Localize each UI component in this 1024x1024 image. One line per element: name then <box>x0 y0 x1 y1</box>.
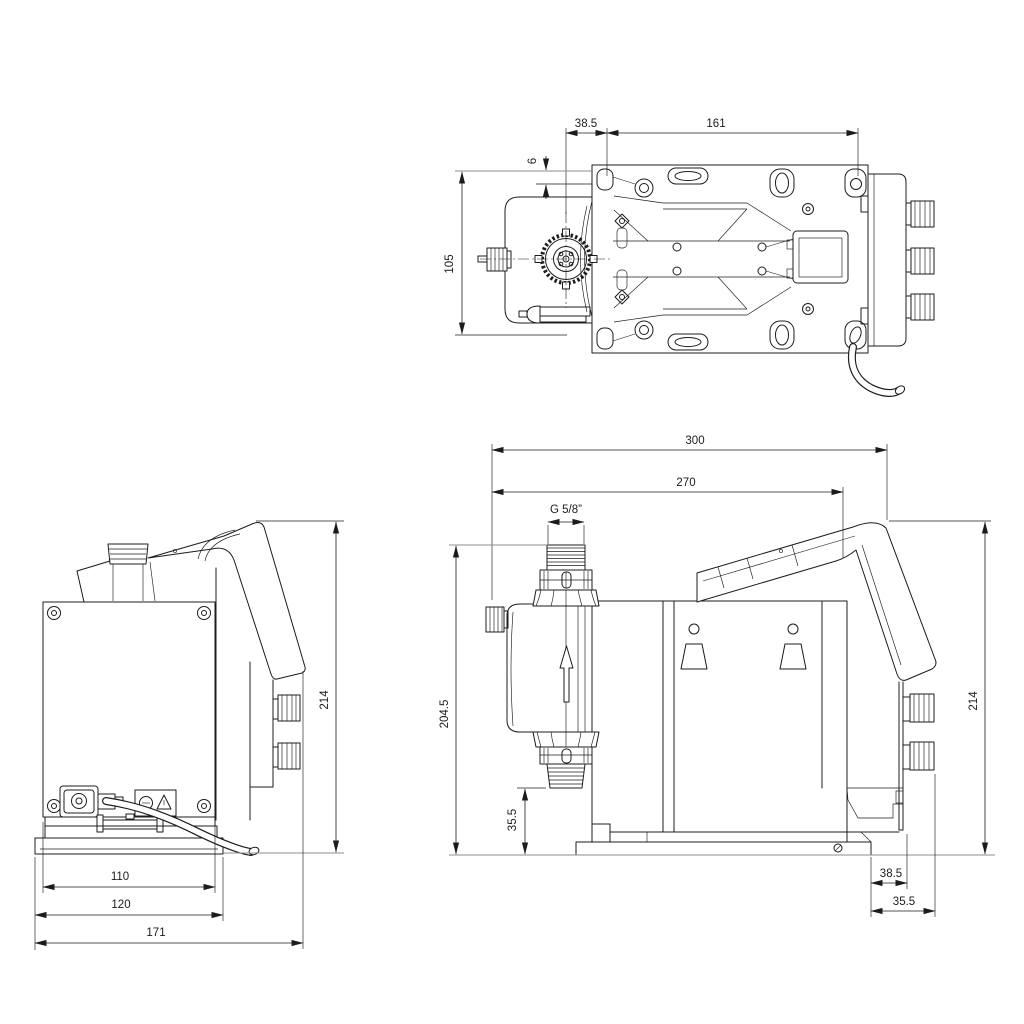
dim-label-hole-spacing: 161 <box>706 118 725 130</box>
mount-slot-bl <box>597 328 613 349</box>
thread-bottom <box>547 764 585 788</box>
back-panel <box>43 602 215 817</box>
rear-bracket <box>847 788 903 818</box>
dim-label-base-width: 120 <box>111 899 130 911</box>
dim-label-offset-back: 38.5 <box>575 118 597 130</box>
discharge-connection <box>533 545 599 606</box>
dim-label-side-height: 214 <box>968 691 980 711</box>
back-view: 214 110 120 171 <box>35 521 344 950</box>
cable-gland <box>906 248 934 274</box>
dim-label-suction-height: 35.5 <box>507 809 519 831</box>
dim-label-height-to-connection: 204.5 <box>439 700 451 729</box>
plate-ribs <box>613 196 793 322</box>
cable-gland <box>273 743 300 769</box>
mount-slot-tl <box>597 169 613 190</box>
drain-knob-top <box>487 248 511 271</box>
thread-top <box>547 545 585 570</box>
dim-label-rear-overhang: 35.5 <box>893 896 915 908</box>
mounting-plate <box>592 165 868 353</box>
dim-label-depth-to-panel: 270 <box>676 477 695 489</box>
top-view-dimensions: 38.5 161 6 105 <box>444 118 858 335</box>
rear-cap-top <box>861 174 934 346</box>
power-cable-top <box>852 347 906 396</box>
cable-gland <box>903 742 934 770</box>
pump-dimensional-drawing: 38.5 161 6 105 <box>0 0 1024 1024</box>
mount-hole-mark <box>689 624 699 634</box>
head-bracket <box>519 306 590 323</box>
drawing-page: 38.5 161 6 105 <box>0 0 1024 1024</box>
mount-slot-tr <box>845 169 866 197</box>
keyhole-mark <box>780 644 806 669</box>
pump-body-side <box>592 601 903 842</box>
top-view: 38.5 161 6 105 <box>444 118 934 396</box>
dim-label-depth-total: 300 <box>685 435 704 447</box>
cable-gland <box>273 695 300 721</box>
base-side <box>576 824 899 855</box>
dim-label-base-inner-width: 110 <box>111 871 129 883</box>
dim-label-back-depth: 171 <box>146 927 165 939</box>
dosing-head-side <box>486 545 599 788</box>
dim-label-edge-offset: 6 <box>527 158 539 164</box>
dim-label-base-to-plug: 38.5 <box>880 868 902 880</box>
vent-valve <box>77 544 155 602</box>
side-view: 300 270 G 5/8” 204.5 35.5 214 38.5 35.5 <box>439 435 995 917</box>
cable-gland <box>903 694 934 722</box>
control-panel-side <box>697 523 936 681</box>
dim-label-back-height: 214 <box>319 690 331 710</box>
mount-hole-mark <box>788 624 798 634</box>
drain-knob-side <box>486 607 508 632</box>
dim-label-top-width: 105 <box>444 254 456 273</box>
cable-gland <box>906 201 934 227</box>
keyhole-mark <box>681 644 707 669</box>
dim-label-thread: G 5/8” <box>550 504 582 516</box>
suction-connection <box>533 732 599 788</box>
cable-gland <box>906 294 934 320</box>
